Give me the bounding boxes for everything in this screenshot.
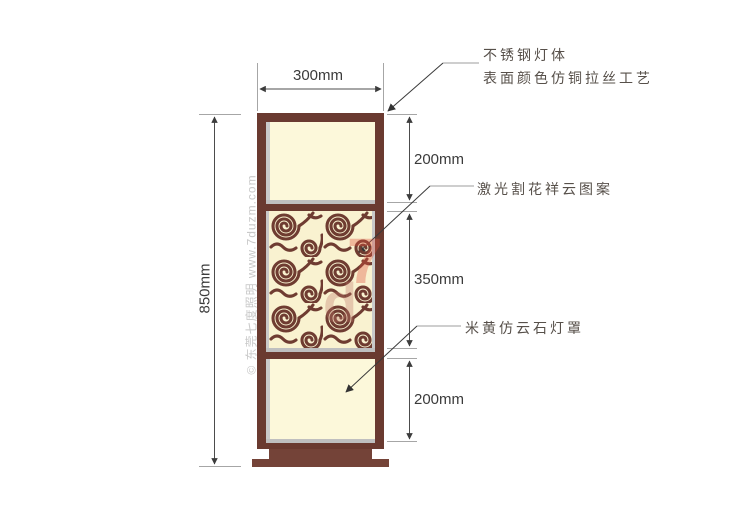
lamp-inner-sections: 7 d bbox=[266, 122, 375, 443]
drawing-canvas: © 东莞七度照明 www.7duzm.com 7 d bbox=[0, 0, 750, 521]
note-steel-body-line1: 不锈钢灯体 bbox=[483, 44, 653, 67]
frame-divider bbox=[266, 352, 375, 359]
dim-height-label: 850mm bbox=[197, 258, 212, 320]
note-marble-shade: 米黄仿云石灯罩 bbox=[465, 317, 584, 340]
lamp-left-frame-column bbox=[257, 122, 266, 443]
dim-bottom-section-label: 200mm bbox=[414, 391, 464, 408]
lamp-top-frame-bar bbox=[257, 113, 384, 122]
lamp-elevation: 7 d bbox=[257, 113, 384, 467]
dim-top-section-label: 200mm bbox=[414, 151, 464, 168]
note-steel-body: 不锈钢灯体 表面颜色仿铜拉丝工艺 bbox=[483, 44, 653, 90]
note-steel-body-line2: 表面颜色仿铜拉丝工艺 bbox=[483, 67, 653, 90]
side-watermark-text: © 东莞七度照明 www.7duzm.com bbox=[243, 145, 258, 405]
cloud-pattern-panel: 7 d bbox=[266, 211, 375, 348]
right-dims-group bbox=[387, 115, 417, 442]
red-logo-watermark: 7 d bbox=[347, 235, 383, 329]
frame-divider bbox=[266, 204, 375, 211]
bottom-lampshade-panel bbox=[266, 359, 375, 439]
leader-body-group bbox=[388, 63, 479, 111]
lamp-base-plate bbox=[252, 459, 389, 467]
note-laser-pattern: 激光割花祥云图案 bbox=[477, 178, 613, 201]
dim-width-label: 300mm bbox=[288, 67, 348, 84]
top-lampshade-panel bbox=[266, 122, 375, 200]
dim-middle-section-label: 350mm bbox=[414, 271, 464, 288]
lamp-pedestal bbox=[269, 449, 372, 459]
